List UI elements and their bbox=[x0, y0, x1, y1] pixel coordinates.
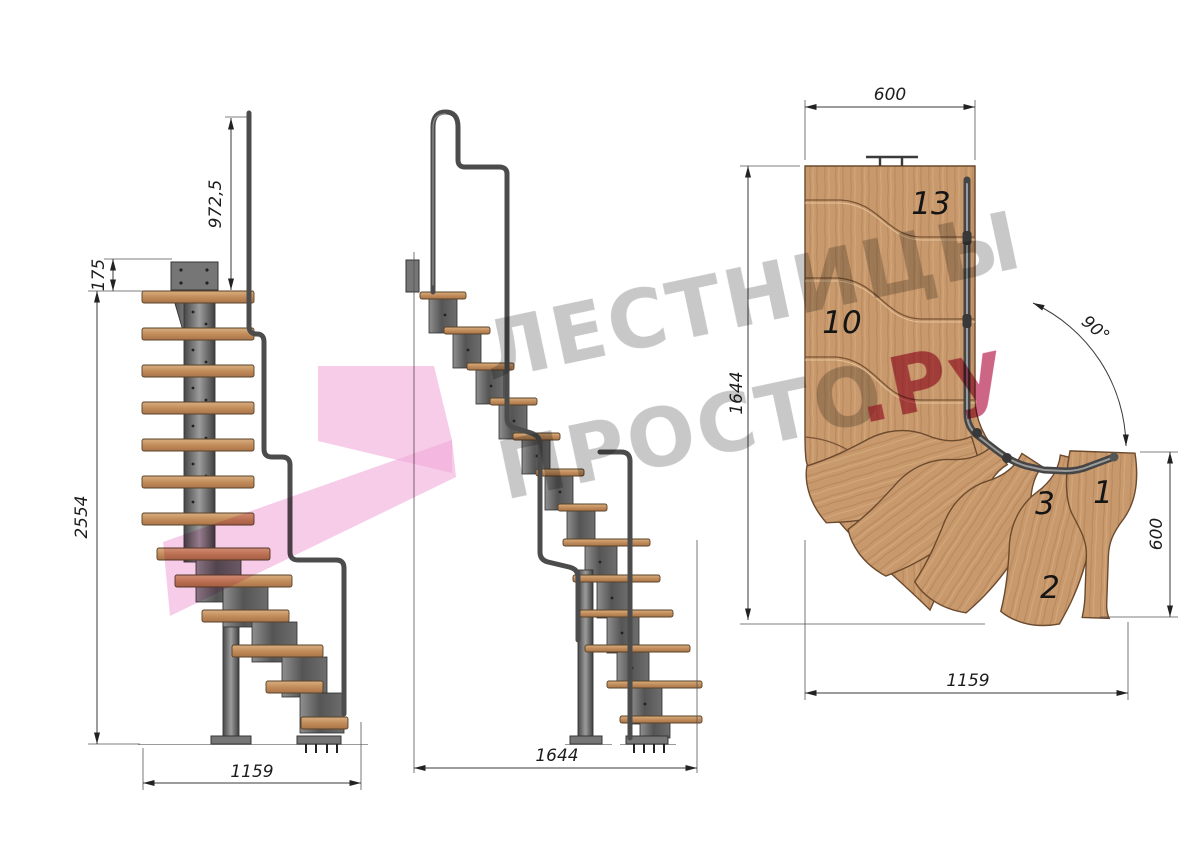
dim-front-rail-height: 972,5 bbox=[206, 180, 226, 229]
front-top-plate bbox=[171, 262, 218, 290]
dim-plan-platform-width: 600 bbox=[874, 85, 906, 105]
plan-step-label-2: 2 bbox=[1040, 570, 1060, 606]
dim-plan-bottom-run: 600 bbox=[1147, 518, 1167, 550]
plan-step-label-1: 1 bbox=[1093, 475, 1113, 511]
dim-front-plate-height: 175 bbox=[89, 259, 109, 291]
drawing-page: 972,5 175 2554 1159 bbox=[0, 0, 1200, 849]
side-anchor-bolts bbox=[634, 744, 664, 753]
front-anchor-bolts bbox=[306, 744, 337, 753]
dim-plan-width: 1159 bbox=[946, 671, 989, 691]
dim-side-length: 1644 bbox=[535, 746, 578, 766]
dim-front-total-height: 2554 bbox=[72, 495, 92, 538]
plan-wall-bracket bbox=[866, 157, 918, 166]
dim-front-width: 1159 bbox=[230, 762, 273, 782]
staircase-drawing: 972,5 175 2554 1159 bbox=[0, 0, 1200, 849]
plan-step-label-3: 3 bbox=[1035, 486, 1055, 522]
front-view: 972,5 175 2554 1159 bbox=[72, 113, 368, 790]
side-wall-bracket bbox=[406, 260, 419, 292]
dim-plan-turn-angle: 90° bbox=[1077, 312, 1113, 347]
